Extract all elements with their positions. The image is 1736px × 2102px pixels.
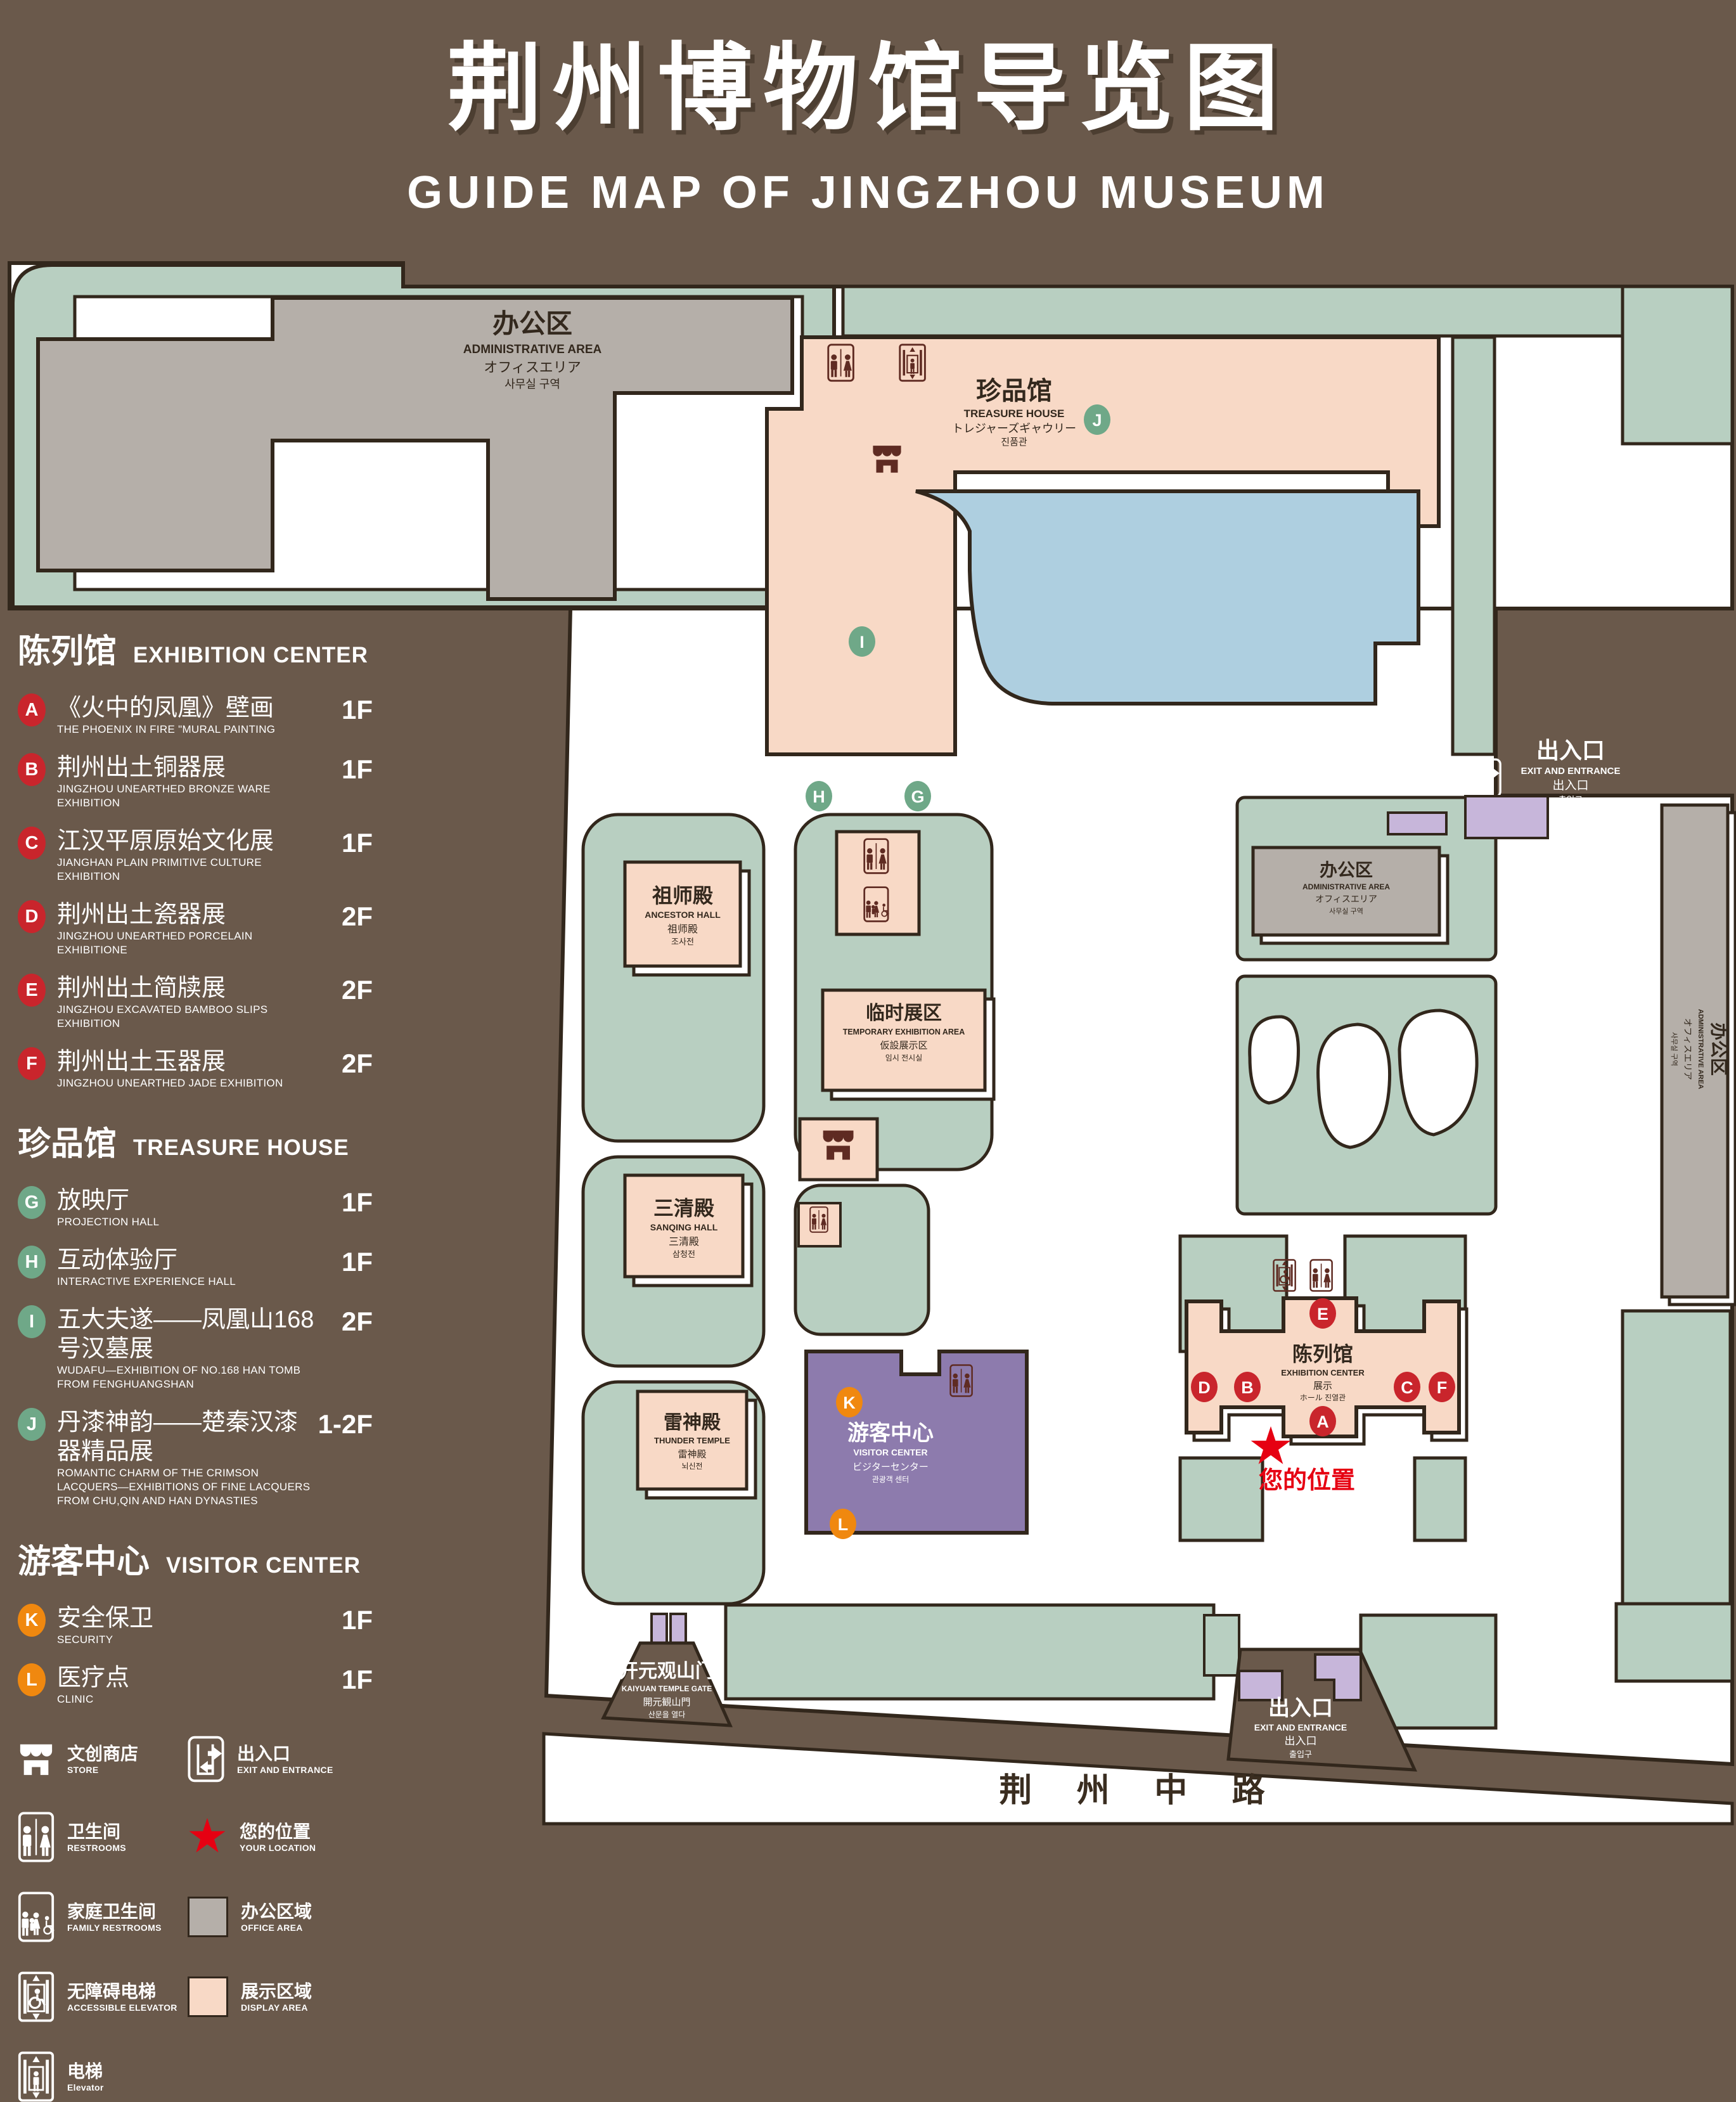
exit-south-en: EXIT AND ENTRANCE (1254, 1722, 1347, 1732)
marker-G: G (904, 781, 931, 811)
item-floor: 2F (342, 975, 373, 1005)
thunder-jp: 雷神殿 (678, 1449, 706, 1460)
green-plot-exh-sw (1180, 1458, 1263, 1540)
item-cn: 五大夫遂——凤凰山168号汉墓展 (57, 1305, 314, 1364)
item-en: JIANGHAN PLAIN PRIMITIVE CULTURE EXHIBIT… (57, 856, 314, 884)
item-floor: 1F (342, 1665, 373, 1695)
restroom-block-small (799, 1203, 840, 1246)
legend-symbol-elevator: 电梯Elevator (18, 2051, 181, 2102)
exhibition-kr: ホール 진열관 (1300, 1393, 1346, 1402)
item-floor: 1F (342, 1247, 373, 1277)
green-plot-s2 (1204, 1615, 1239, 1675)
legend-item-J: J 丹漆神韵——楚秦汉漆器精品展ROMANTIC CHARM OF THE CR… (18, 1408, 373, 1508)
section-title-en: VISITOR CENTER (166, 1553, 361, 1578)
restrooms-icon (18, 1812, 55, 1862)
item-floor: 1F (342, 1187, 373, 1218)
item-en: JINGZHOU EXCAVATED BAMBOO SLIPS EXHIBITI… (57, 1003, 314, 1031)
sanqing-jp: 三清殿 (669, 1236, 699, 1248)
symbol-en: ACCESSIBLE ELEVATOR (67, 2002, 177, 2013)
symbol-cn: 文创商店 (67, 1743, 138, 1765)
marker-K: K (836, 1387, 863, 1417)
symbol-en: OFFICE AREA (241, 1923, 312, 1933)
thunder-en: THUNDER TEMPLE (654, 1436, 730, 1445)
marker-badge-G: G (18, 1186, 46, 1219)
admin-nw-jp: オフィスエリア (484, 359, 581, 375)
green-plot-s4 (1616, 1604, 1732, 1681)
marker-H-letter: H (813, 787, 825, 806)
marker-L: L (830, 1509, 856, 1539)
store-icon (18, 1741, 55, 1777)
marker-G-letter: G (911, 787, 924, 806)
marker-badge-E: E (18, 974, 46, 1007)
road-label: 荆 州 中 路 (999, 1772, 1282, 1809)
marker-C: C (1394, 1372, 1420, 1402)
gate-kr: 산문을 열다 (648, 1710, 686, 1719)
ancestor-kr: 조사전 (671, 937, 694, 946)
marker-F-letter: F (1437, 1378, 1448, 1397)
marker-E-letter: E (1317, 1305, 1328, 1324)
visitor-en: VISITOR CENTER (853, 1447, 927, 1457)
legend-symbol-office-area: 办公区域OFFICE AREA (188, 1892, 373, 1942)
marker-D-letter: D (1198, 1378, 1211, 1397)
marker-badge-L: L (18, 1663, 46, 1696)
exit-south-kr: 출입구 (1289, 1750, 1312, 1759)
marker-D: D (1191, 1372, 1218, 1402)
family-restroom-icon (18, 1892, 55, 1942)
item-cn: 《火中的凤凰》壁画 (57, 693, 314, 723)
admin-e-en: ADMINISTRATIVE AREA (1302, 882, 1390, 891)
legend-symbol-exit: 出入口EXIT AND ENTRANCE (188, 1736, 373, 1783)
garden-pond (1250, 1017, 1299, 1103)
exit-south-cn: 出入口 (1268, 1696, 1333, 1720)
thunder-cn: 雷神殿 (664, 1412, 721, 1433)
guide-map-poster: 荆州博物馆导览图 GUIDE MAP OF JINGZHOU MUSEUM (0, 0, 1736, 1856)
green-plot-se (1623, 1311, 1730, 1644)
marker-C-letter: C (1401, 1378, 1413, 1397)
legend-item-G: G 放映厅PROJECTION HALL 1F (18, 1186, 373, 1229)
gate-block (652, 1614, 667, 1643)
display-area-swatch (188, 1976, 228, 2017)
exit-east-kr: 출입구 (1559, 795, 1583, 805)
marker-I: I (849, 626, 875, 657)
admin-strip-cn: 办公区 (1709, 1022, 1728, 1076)
legend-item-B: B 荆州出土铜器展JINGZHOU UNEARTHED BRONZE WARE … (18, 753, 373, 810)
admin-nw-kr: 사무실 구역 (505, 378, 560, 390)
exit-icon (188, 1736, 224, 1783)
admin-e-kr: 사무실 구역 (1329, 907, 1363, 915)
item-en: SECURITY (57, 1633, 314, 1647)
symbol-cn: 家庭卫生间 (67, 1901, 162, 1923)
gate-en: KAIYUAN TEMPLE GATE (622, 1684, 712, 1693)
section-title-en: EXHIBITION CENTER (133, 643, 368, 668)
location-star-icon (188, 1818, 227, 1856)
item-cn: 放映厅 (57, 1186, 314, 1215)
symbol-en: YOUR LOCATION (240, 1843, 316, 1853)
legend-item-I: I 五大夫遂——凤凰山168号汉墓展WUDAFU—EXHIBITION OF N… (18, 1305, 373, 1391)
legend-item-L: L 医疗点CLINIC 1F (18, 1663, 373, 1706)
marker-E: E (1309, 1298, 1336, 1329)
temporary-cn: 临时展区 (866, 1002, 942, 1024)
exhibition-jp: 展示 (1313, 1381, 1332, 1391)
marker-badge-I: I (18, 1305, 46, 1338)
ancestor-cn: 祖师殿 (652, 884, 713, 907)
ancestor-jp: 祖师殿 (667, 924, 698, 935)
marker-B: B (1234, 1372, 1261, 1402)
marker-F: F (1429, 1372, 1455, 1402)
item-en: WUDAFU—EXHIBITION OF NO.168 HAN TOMB FRO… (57, 1364, 314, 1391)
marker-H: H (806, 781, 832, 811)
item-floor: 1F (342, 1605, 373, 1635)
admin-nw-en: ADMINISTRATIVE AREA (463, 343, 602, 356)
legend-symbols: 文创商店STORE 出入口EXIT AND ENTRANCE 卫生间RESTRO… (18, 1736, 373, 2102)
legend-symbol-restrooms: 卫生间RESTROOMS (18, 1812, 181, 1862)
exit-east-jp: 出入口 (1552, 778, 1588, 792)
legend-symbol-accessible-elevator: 无障碍电梯ACCESSIBLE ELEVATOR (18, 1971, 181, 2022)
green-strip-top (843, 287, 1732, 336)
marker-badge-A: A (18, 693, 46, 726)
temporary-en: TEMPORARY EXHIBITION AREA (843, 1028, 965, 1036)
restroom-block (837, 832, 919, 934)
sanqing-en: SANQING HALL (650, 1222, 718, 1232)
marker-badge-B: B (18, 753, 46, 786)
item-floor: 1F (342, 695, 373, 725)
entrance-block (1388, 813, 1446, 834)
item-en: INTERACTIVE EXPERIENCE HALL (57, 1275, 314, 1289)
symbol-en: Elevator (67, 2082, 104, 2092)
green-plot-exh-se (1415, 1458, 1465, 1540)
legend-symbol-display-area: 展示区域DISPLAY AREA (188, 1971, 373, 2022)
legend-item-F: F 荆州出土玉器展JINGZHOU UNEARTHED JADE EXHIBIT… (18, 1047, 373, 1090)
item-floor: 2F (342, 901, 373, 932)
marker-J: J (1084, 404, 1110, 435)
marker-badge-H: H (18, 1246, 46, 1279)
marker-J-letter: J (1092, 411, 1102, 430)
section-title-en: TREASURE HOUSE (133, 1135, 349, 1161)
elevator-icon (18, 2051, 55, 2102)
symbol-cn: 无障碍电梯 (67, 1981, 177, 2002)
symbol-cn: 卫生间 (67, 1821, 126, 1843)
exit-east-en: EXIT AND ENTRANCE (1521, 766, 1621, 777)
symbol-en: STORE (67, 1765, 138, 1775)
symbol-en: DISPLAY AREA (241, 2002, 312, 2013)
sanqing-cn: 三清殿 (653, 1197, 714, 1220)
marker-I-letter: I (859, 633, 865, 652)
symbol-en: RESTROOMS (67, 1843, 126, 1853)
symbol-cn: 电梯 (67, 2061, 104, 2082)
marker-A-letter: A (1316, 1412, 1329, 1431)
legend-item-K: K 安全保卫SECURITY 1F (18, 1604, 373, 1647)
legend-item-E: E 荆州出土简牍展JINGZHOU EXCAVATED BAMBOO SLIPS… (18, 974, 373, 1031)
item-cn: 荆州出土铜器展 (57, 753, 314, 782)
item-cn: 荆州出土瓷器展 (57, 900, 314, 929)
legend-symbol-family-restrooms: 家庭卫生间FAMILY RESTROOMS (18, 1892, 181, 1942)
legend-symbol-location: 您的位置YOUR LOCATION (188, 1812, 373, 1862)
item-cn: 荆州出土玉器展 (57, 1047, 314, 1076)
item-cn: 安全保卫 (57, 1604, 314, 1633)
gate-cn: 开元观山门 (619, 1661, 714, 1682)
admin-strip-kr: 사무실 구역 (1670, 1032, 1678, 1066)
marker-badge-J: J (18, 1408, 46, 1441)
visitor-kr: 관광객 센터 (872, 1475, 910, 1484)
exit-south-jp: 出入口 (1285, 1735, 1317, 1747)
legend-symbol-store: 文创商店STORE (18, 1736, 181, 1783)
symbol-cn: 出入口 (237, 1743, 333, 1765)
legend-section-exhibition-center: 陈列馆 EXHIBITION CENTER (18, 624, 373, 672)
green-block-ne (1623, 287, 1732, 444)
section-title-cn: 游客中心 (18, 1535, 150, 1582)
accessible-elevator-icon (18, 1971, 55, 2022)
marker-badge-K: K (18, 1604, 46, 1637)
item-en: JINGZHOU UNEARTHED PORCELAIN EXHIBITIONE (57, 929, 314, 957)
sanqing-kr: 삼청전 (672, 1249, 695, 1259)
item-floor: 1-2F (318, 1409, 373, 1440)
item-cn: 医疗点 (57, 1663, 314, 1693)
section-title-cn: 陈列馆 (18, 624, 117, 672)
item-en: JINGZHOU UNEARTHED BRONZE WARE EXHIBITIO… (57, 782, 314, 810)
green-strip-east (1453, 337, 1495, 754)
item-en: ROMANTIC CHARM OF THE CRIMSON LACQUERS—E… (57, 1466, 314, 1508)
legend-item-C: C 江汉平原原始文化展JIANGHAN PLAIN PRIMITIVE CULT… (18, 827, 373, 884)
item-floor: 2F (342, 1306, 373, 1337)
item-cn: 互动体验厅 (57, 1246, 314, 1275)
marker-badge-C: C (18, 827, 46, 860)
legend-panel: 陈列馆 EXHIBITION CENTER A 《火中的凤凰》壁画THE PHO… (18, 624, 373, 2102)
marker-badge-D: D (18, 900, 46, 933)
symbol-en: FAMILY RESTROOMS (67, 1923, 162, 1933)
item-cn: 江汉平原原始文化展 (57, 827, 314, 856)
green-plot-s (726, 1605, 1214, 1699)
legend-item-A: A 《火中的凤凰》壁画THE PHOENIX IN FIRE "MURAL PA… (18, 693, 373, 737)
section-title-cn: 珍品馆 (18, 1117, 117, 1164)
gate-jp: 開元観山門 (643, 1697, 690, 1708)
admin-e-cn: 办公区 (1320, 860, 1373, 880)
treasure-en: TREASURE HOUSE (964, 408, 1065, 420)
ancestor-en: ANCESTOR HALL (645, 910, 721, 920)
item-en: CLINIC (57, 1693, 314, 1706)
visitor-cn: 游客中心 (847, 1421, 934, 1445)
lake (916, 491, 1418, 704)
treasure-jp: トレジャーズギャウリー (952, 422, 1076, 435)
item-cn: 荆州出土简牍展 (57, 974, 314, 1003)
symbol-cn: 您的位置 (240, 1821, 316, 1843)
admin-strip-jp: オフィスエリア (1683, 1018, 1693, 1080)
symbol-en: EXIT AND ENTRANCE (237, 1765, 333, 1775)
admin-strip-en: ADMINISTRATIVE AREA (1697, 1009, 1704, 1090)
item-en: JINGZHOU UNEARTHED JADE EXHIBITION (57, 1076, 314, 1090)
treasure-cn: 珍品馆 (976, 377, 1052, 405)
office-area-swatch (188, 1897, 228, 1937)
legend-item-D: D 荆州出土瓷器展JINGZHOU UNEARTHED PORCELAIN EX… (18, 900, 373, 957)
legend-section-visitor-center: 游客中心 VISITOR CENTER (18, 1535, 373, 1582)
marker-A: A (1309, 1406, 1336, 1436)
item-floor: 2F (342, 1048, 373, 1079)
item-cn: 丹漆神韵——楚秦汉漆器精品展 (57, 1408, 314, 1466)
treasure-kr: 진품관 (1001, 437, 1027, 448)
symbol-cn: 展示区域 (241, 1981, 312, 2002)
exhibition-cn: 陈列馆 (1292, 1343, 1353, 1365)
marker-B-letter: B (1241, 1378, 1254, 1397)
admin-e-jp: オフィスエリア (1315, 894, 1377, 904)
marker-L-letter: L (838, 1515, 849, 1534)
exit-east-cn: 出入口 (1536, 737, 1605, 763)
symbol-cn: 办公区域 (241, 1901, 312, 1923)
item-en: PROJECTION HALL (57, 1215, 314, 1229)
item-en: THE PHOENIX IN FIRE "MURAL PAINTING (57, 723, 314, 737)
legend-section-treasure-house: 珍品馆 TREASURE HOUSE (18, 1117, 373, 1164)
item-floor: 1F (342, 828, 373, 858)
garden-pond (1318, 1024, 1390, 1147)
temporary-jp: 仮設展示区 (880, 1040, 927, 1051)
legend-item-H: H 互动体验厅INTERACTIVE EXPERIENCE HALL 1F (18, 1246, 373, 1289)
item-floor: 1F (342, 754, 373, 785)
entrance-block (1465, 796, 1548, 838)
visitor-jp: ビジターセンター (852, 1462, 929, 1473)
marker-badge-F: F (18, 1047, 46, 1080)
your-location-label: 您的位置 (1259, 1467, 1355, 1494)
exhibition-en: EXHIBITION CENTER (1281, 1368, 1365, 1377)
marker-K-letter: K (843, 1393, 856, 1412)
admin-nw-cn: 办公区 (492, 309, 572, 339)
thunder-kr: 뇌신전 (681, 1462, 702, 1471)
gate-block (671, 1614, 686, 1643)
temporary-kr: 임시 전시실 (885, 1054, 923, 1062)
